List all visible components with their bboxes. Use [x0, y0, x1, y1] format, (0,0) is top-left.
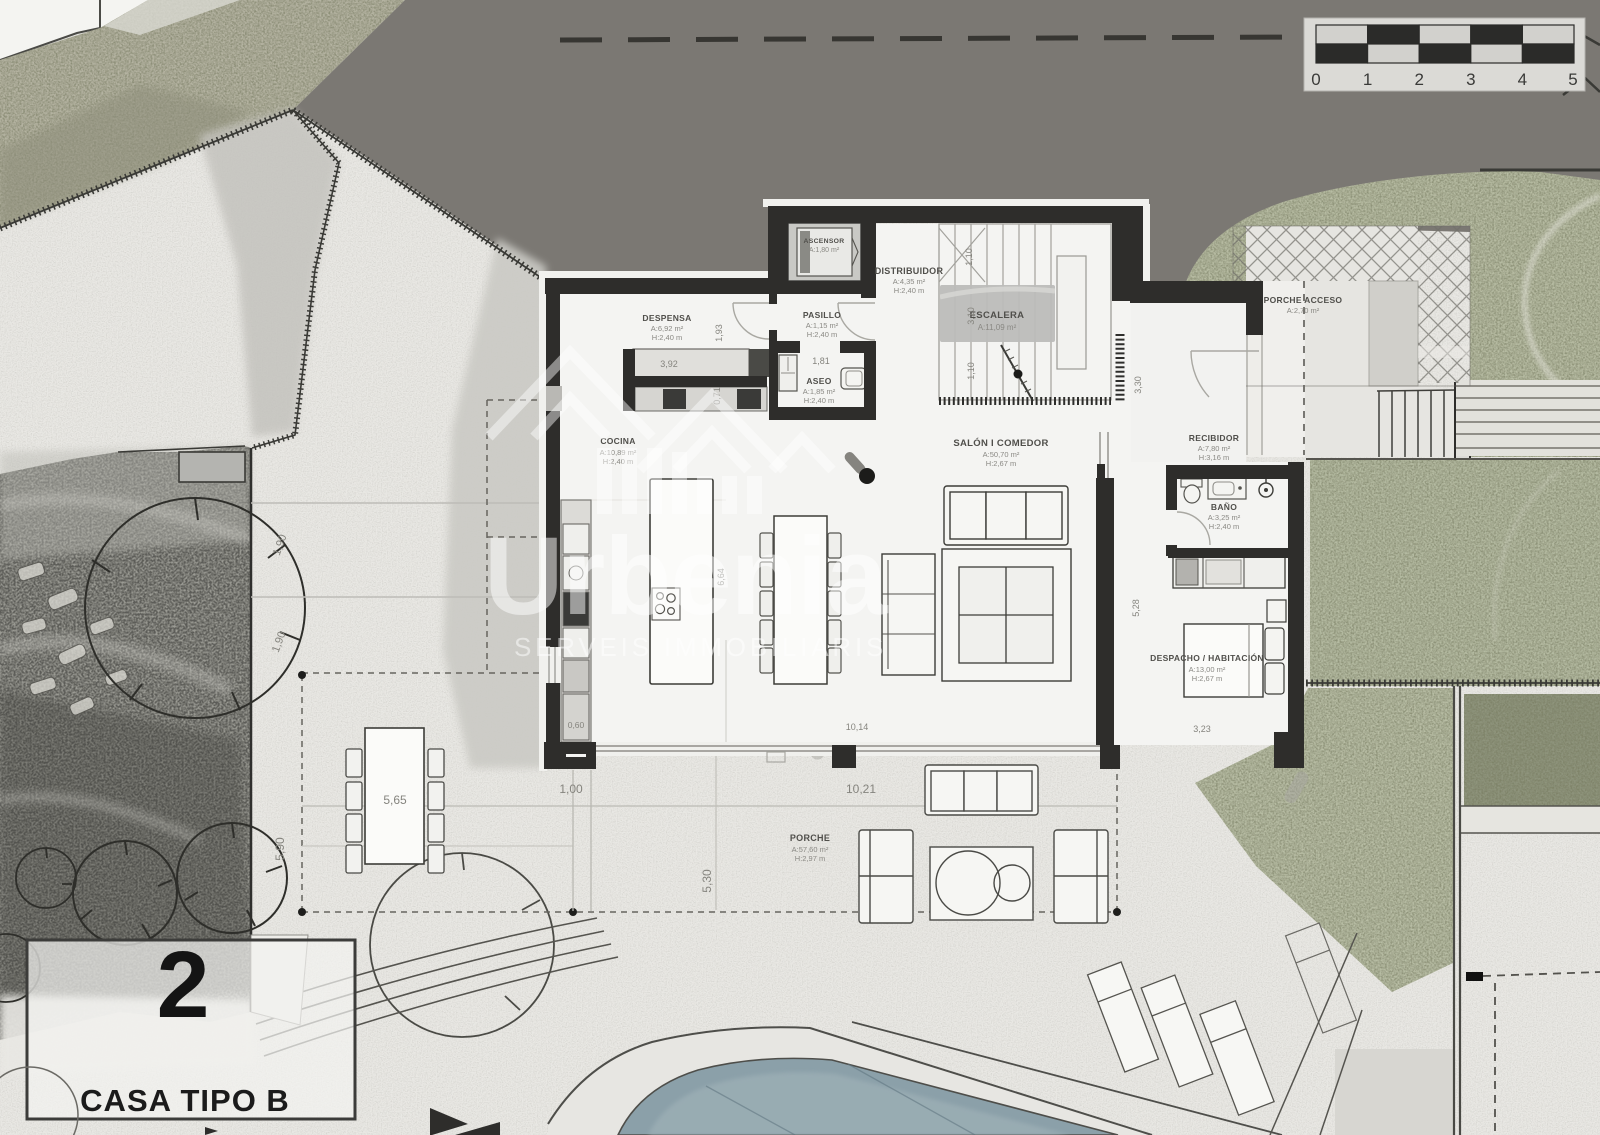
svg-text:4: 4	[1518, 70, 1527, 89]
svg-text:1,81: 1,81	[812, 356, 830, 366]
svg-text:1,10: 1,10	[966, 362, 976, 380]
svg-text:A:11,09 m²: A:11,09 m²	[978, 323, 1017, 332]
svg-text:2: 2	[1414, 70, 1423, 89]
svg-text:5,28: 5,28	[1131, 599, 1141, 617]
svg-text:SALÓN I COMEDOR: SALÓN I COMEDOR	[953, 437, 1048, 449]
svg-text:PORCHE ACCESO: PORCHE ACCESO	[1264, 295, 1343, 305]
svg-text:A:3,25 m²: A:3,25 m²	[1208, 513, 1241, 522]
svg-text:5,65: 5,65	[383, 793, 407, 807]
svg-text:H:2,40 m: H:2,40 m	[894, 286, 924, 295]
svg-text:1,00: 1,00	[559, 782, 583, 796]
svg-text:3,92: 3,92	[660, 359, 678, 369]
svg-text:DESPACHO / HABITACIÓN: DESPACHO / HABITACIÓN	[1150, 652, 1264, 663]
svg-text:A:57,60 m²: A:57,60 m²	[792, 845, 829, 854]
svg-text:10,14: 10,14	[846, 722, 869, 732]
svg-text:RECIBIDOR: RECIBIDOR	[1189, 433, 1239, 443]
svg-text:3,30: 3,30	[1133, 376, 1143, 394]
svg-text:A:1,15 m²: A:1,15 m²	[806, 321, 839, 330]
svg-text:A:6,92 m²: A:6,92 m²	[651, 324, 684, 333]
svg-text:0: 0	[1311, 70, 1320, 89]
svg-text:A:13,00 m²: A:13,00 m²	[1189, 665, 1226, 674]
svg-text:5,90: 5,90	[273, 837, 287, 861]
svg-text:A:1,80 m²: A:1,80 m²	[809, 247, 840, 254]
svg-text:A:7,80 m²: A:7,80 m²	[1198, 444, 1231, 453]
svg-text:1,10: 1,10	[964, 248, 974, 266]
svg-text:5,30: 5,30	[700, 869, 714, 893]
svg-text:H:2,67 m: H:2,67 m	[1192, 674, 1222, 683]
svg-text:H:2,67 m: H:2,67 m	[986, 459, 1016, 468]
svg-text:3,23: 3,23	[1193, 724, 1211, 734]
svg-text:BAÑO: BAÑO	[1211, 502, 1237, 512]
svg-text:A:50,70 m²: A:50,70 m²	[983, 450, 1020, 459]
svg-text:DISTRIBUIDOR: DISTRIBUIDOR	[875, 266, 944, 276]
svg-text:CASA TIPO B: CASA TIPO B	[80, 1083, 290, 1118]
svg-text:H:2,40 m: H:2,40 m	[804, 396, 834, 405]
svg-text:A:4,35 m²: A:4,35 m²	[893, 277, 926, 286]
svg-text:ASEO: ASEO	[806, 376, 831, 386]
svg-text:H:2,97 m: H:2,97 m	[795, 854, 825, 863]
svg-text:10,21: 10,21	[846, 782, 876, 796]
svg-text:1: 1	[1363, 70, 1372, 89]
svg-text:Urbenia: Urbenia	[484, 515, 888, 638]
svg-text:DESPENSA: DESPENSA	[642, 313, 691, 323]
svg-text:H:3,16 m: H:3,16 m	[1199, 453, 1229, 462]
svg-text:H:2,40 m: H:2,40 m	[807, 330, 837, 339]
svg-text:0,60: 0,60	[568, 720, 585, 730]
svg-text:2: 2	[157, 932, 210, 1038]
svg-text:3: 3	[1466, 70, 1475, 89]
svg-text:A:2,70 m²: A:2,70 m²	[1287, 306, 1320, 315]
svg-text:ESCALERA: ESCALERA	[970, 310, 1025, 321]
svg-text:H:2,40 m: H:2,40 m	[652, 333, 682, 342]
svg-text:A:1,85 m²: A:1,85 m²	[803, 387, 836, 396]
svg-text:3,10: 3,10	[966, 307, 976, 325]
svg-text:PORCHE: PORCHE	[790, 833, 830, 843]
svg-text:ASCENSOR: ASCENSOR	[804, 238, 845, 245]
svg-text:SERVEIS IMMOBILIARIS: SERVEIS IMMOBILIARIS	[514, 632, 887, 662]
svg-text:5: 5	[1568, 70, 1577, 89]
svg-text:PASILLO: PASILLO	[803, 310, 841, 320]
svg-text:1,93: 1,93	[714, 324, 724, 342]
svg-text:H:2,40 m: H:2,40 m	[1209, 522, 1239, 531]
